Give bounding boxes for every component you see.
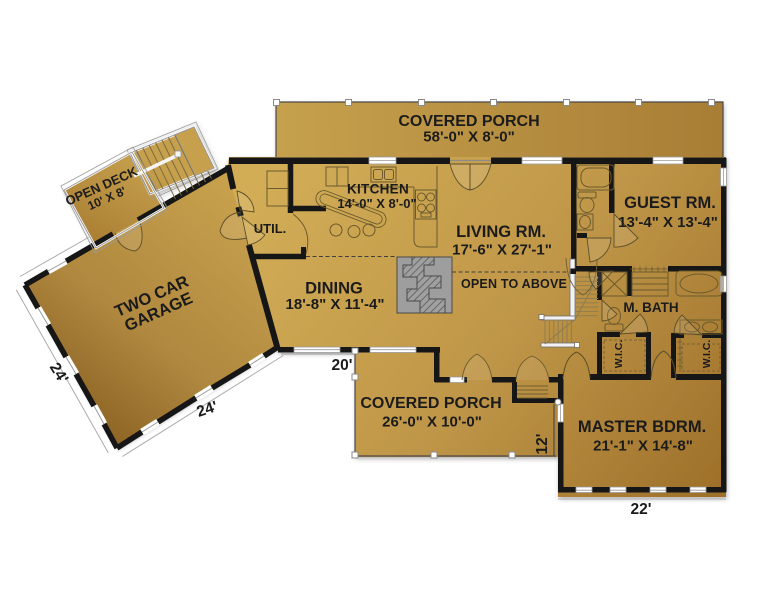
svg-text:UTIL.: UTIL. xyxy=(254,221,287,236)
svg-text:GUEST RM.: GUEST RM. xyxy=(624,194,716,212)
svg-text:18'-8" X 11'-4": 18'-8" X 11'-4" xyxy=(286,296,385,313)
svg-text:W.I.C.: W.I.C. xyxy=(701,340,713,369)
svg-text:OPEN TO ABOVE: OPEN TO ABOVE xyxy=(461,277,567,291)
svg-text:LIVING RM.: LIVING RM. xyxy=(456,223,546,241)
svg-text:W.I.C.: W.I.C. xyxy=(613,340,625,369)
svg-text:21'-1" X 14'-8": 21'-1" X 14'-8" xyxy=(593,438,693,455)
svg-text:COVERED PORCH: COVERED PORCH xyxy=(360,395,501,412)
svg-text:MASTER BDRM.: MASTER BDRM. xyxy=(578,418,706,436)
svg-text:58'-0" X 8'-0": 58'-0" X 8'-0" xyxy=(423,129,514,146)
svg-text:24': 24' xyxy=(195,398,220,421)
svg-text:26'-0" X 10'-0": 26'-0" X 10'-0" xyxy=(382,414,482,431)
svg-text:22': 22' xyxy=(631,501,652,518)
svg-text:20': 20' xyxy=(332,357,353,374)
svg-text:COVERED PORCH: COVERED PORCH xyxy=(398,113,539,130)
svg-text:17'-6" X 27'-1": 17'-6" X 27'-1" xyxy=(452,242,552,259)
svg-text:KITCHEN: KITCHEN xyxy=(347,182,409,197)
svg-text:14'-0" X 8'-0": 14'-0" X 8'-0" xyxy=(337,196,416,211)
svg-text:M. BATH: M. BATH xyxy=(623,300,678,315)
svg-text:12': 12' xyxy=(534,434,551,455)
svg-text:DINING: DINING xyxy=(305,280,363,298)
svg-text:13'-4" X 13'-4": 13'-4" X 13'-4" xyxy=(618,214,718,231)
